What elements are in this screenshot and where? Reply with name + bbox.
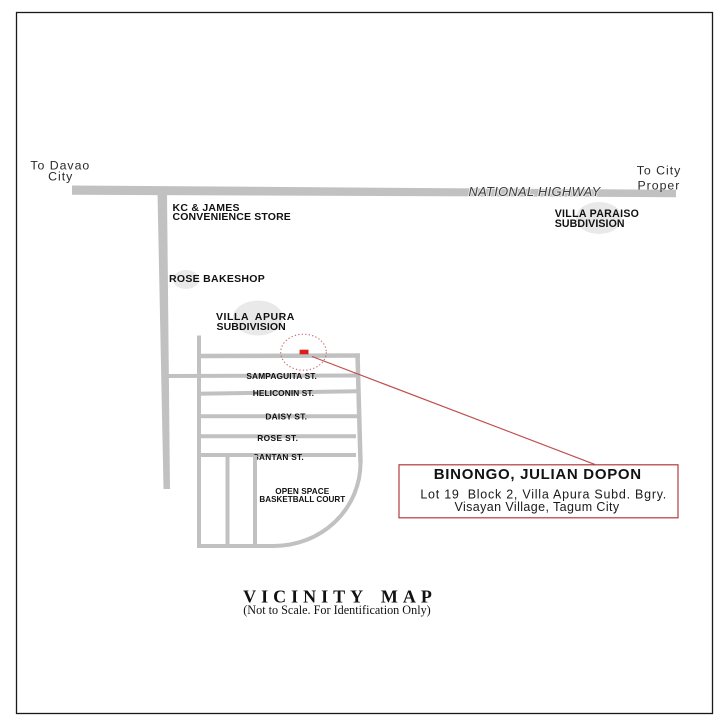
svg-text:HELICONIN ST.: HELICONIN ST. bbox=[253, 388, 314, 398]
svg-text:(Not to Scale. For Identificat: (Not to Scale. For Identification Only) bbox=[243, 603, 431, 617]
svg-text:SUBDIVISION: SUBDIVISION bbox=[217, 321, 286, 333]
svg-text:To City: To City bbox=[637, 164, 682, 178]
svg-text:ROSE ST.: ROSE ST. bbox=[257, 433, 298, 443]
svg-text:Proper: Proper bbox=[637, 178, 680, 192]
svg-text:CONVENIENCE STORE: CONVENIENCE STORE bbox=[173, 211, 291, 223]
svg-text:BASKETBALL COURT: BASKETBALL COURT bbox=[259, 495, 345, 504]
svg-text:ROSE BAKESHOP: ROSE BAKESHOP bbox=[169, 273, 265, 285]
svg-text:SUBDIVISION: SUBDIVISION bbox=[555, 218, 625, 230]
svg-text:BINONGO, JULIAN DOPON: BINONGO, JULIAN DOPON bbox=[434, 466, 642, 483]
svg-text:SAMPAGUITA ST.: SAMPAGUITA ST. bbox=[246, 371, 317, 381]
svg-text:DAISY ST.: DAISY ST. bbox=[265, 411, 307, 421]
svg-text:NATIONAL HIGHWAY: NATIONAL HIGHWAY bbox=[468, 184, 601, 199]
svg-text:Visayan Village, Tagum City: Visayan Village, Tagum City bbox=[454, 500, 619, 514]
svg-text:City: City bbox=[48, 170, 73, 184]
svg-text:SANTAN ST.: SANTAN ST. bbox=[253, 452, 304, 462]
